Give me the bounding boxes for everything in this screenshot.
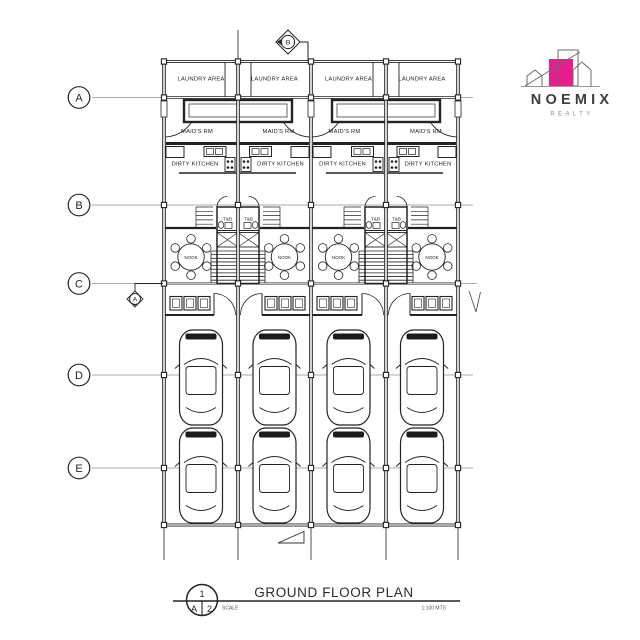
nook-table: NOOK <box>264 235 304 280</box>
stove <box>241 158 251 172</box>
section-marker-left-letter: A <box>133 296 138 303</box>
kitchen-counter <box>313 147 331 158</box>
toilet-bath-label: T&B <box>223 217 232 222</box>
grid-row-label: B <box>75 200 82 212</box>
grid-tick <box>161 59 166 64</box>
dirty-kitchen-label: DIRTY KITCHEN <box>319 162 366 168</box>
nook-table: NOOK <box>412 235 452 280</box>
front-window <box>265 297 277 311</box>
grid-tick <box>455 95 460 100</box>
door-swing-arc <box>241 294 263 316</box>
title-block: 1 A 2 GROUND FLOOR PLAN SCALE 1:100 MTS <box>173 585 460 616</box>
stove <box>225 158 235 172</box>
grid-tick <box>383 372 388 377</box>
dirty-kitchen-label: DIRTY KITCHEN <box>257 162 304 168</box>
kitchen-counter <box>291 147 309 158</box>
front-window <box>345 297 357 311</box>
ref-sheet-number: 2 <box>207 604 212 614</box>
nook-table: NOOK <box>171 235 211 280</box>
unit-1: LAUNDRY AREAMAID'S RMDIRTY KITCHENNOOK <box>164 77 237 524</box>
drawing-sheet: LAUNDRY AREAMAID'S RMDIRTY KITCHENNOOKLA… <box>0 0 640 640</box>
unit-2: LAUNDRY AREAMAID'S RMDIRTY KITCHENNOOK <box>239 77 311 524</box>
grid-bubble-C: C <box>68 273 90 295</box>
front-window <box>440 297 452 311</box>
car <box>396 428 448 523</box>
car-windshield-band <box>259 432 290 438</box>
grid-bubble-A: A <box>68 87 90 109</box>
grid-tick <box>235 372 240 377</box>
front-window <box>317 297 329 311</box>
car <box>396 330 448 425</box>
grid-tick <box>235 202 240 207</box>
grid-bubble-B: B <box>68 194 90 216</box>
front-window <box>198 297 210 311</box>
car-windshield-band <box>407 432 438 438</box>
front-window <box>412 297 424 311</box>
kitchen-counter <box>438 147 456 158</box>
car <box>249 330 301 425</box>
door-swing-arc <box>389 294 411 316</box>
maids-room-label: MAID'S RM <box>263 129 295 135</box>
dirty-kitchen-label: DIRTY KITCHEN <box>405 162 452 168</box>
front-window <box>170 297 182 311</box>
grid-tick <box>455 465 460 470</box>
grid-tick <box>235 95 240 100</box>
wall-opening <box>161 101 167 117</box>
grid-tick <box>308 372 313 377</box>
toilet-bath-label: T&B <box>244 217 253 222</box>
scale-label: SCALE <box>222 606 239 612</box>
car <box>323 330 375 425</box>
grid-bubbles: ABCDE <box>68 87 90 479</box>
kitchen-counter <box>166 147 184 158</box>
door-swing-arc <box>214 294 236 316</box>
ramp-symbol <box>278 532 304 544</box>
grid-tick <box>161 202 166 207</box>
laundry-area-label: LAUNDRY AREA <box>325 77 372 83</box>
grid-row-label: D <box>75 370 83 382</box>
car-windshield-band <box>333 432 364 438</box>
car-windshield-band <box>186 432 217 438</box>
laundry-area-label: LAUNDRY AREA <box>178 77 225 83</box>
wall-opening <box>308 101 314 117</box>
door-swing-arc <box>362 294 384 316</box>
front-window <box>279 297 291 311</box>
grid-row-label: A <box>75 92 83 104</box>
grid-tick <box>308 522 313 527</box>
scale-value: 1:100 MTS <box>422 606 447 612</box>
car <box>175 428 227 523</box>
section-marker-top: B <box>276 30 308 60</box>
grid-tick <box>383 202 388 207</box>
dirty-kitchen-label: DIRTY KITCHEN <box>172 162 219 168</box>
maids-room-label: MAID'S RM <box>181 129 213 135</box>
wall-opening <box>455 101 461 117</box>
drawing-title: GROUND FLOOR PLAN <box>254 585 413 600</box>
front-window <box>426 297 438 311</box>
nook-label: NOOK <box>278 255 291 260</box>
section-marker-top-letter: B <box>286 40 291 47</box>
car <box>175 330 227 425</box>
grid-tick <box>455 281 460 286</box>
nook-label: NOOK <box>425 255 438 260</box>
nook-label: NOOK <box>332 255 345 260</box>
car-windshield-band <box>186 334 217 340</box>
grid-row-label: E <box>75 463 82 475</box>
front-window <box>293 297 305 311</box>
section-marker-left: A <box>127 284 163 308</box>
stove <box>389 158 399 172</box>
logo-tagline: REALTY <box>550 112 593 118</box>
unit-4: LAUNDRY AREAMAID'S RMDIRTY KITCHENNOOK <box>387 77 458 524</box>
grid-tick <box>308 281 313 286</box>
grid-tick <box>308 465 313 470</box>
logo-name: NOEMIX <box>531 92 613 108</box>
grid-bubble-D: D <box>68 364 90 386</box>
grid-tick <box>161 95 166 100</box>
grid-tick <box>235 281 240 286</box>
car <box>249 428 301 523</box>
logo-accent-block <box>549 59 573 86</box>
stove <box>373 158 383 172</box>
grid-tick <box>161 522 166 527</box>
maids-room-label: MAID'S RM <box>329 129 361 135</box>
nook-table: NOOK <box>318 235 358 280</box>
grid-tick <box>383 522 388 527</box>
car-windshield-band <box>407 334 438 340</box>
noemix-logo: NOEMIX REALTY <box>521 50 613 118</box>
toilet-bath-label: T&B <box>392 217 401 222</box>
ref-sheet-letter: A <box>191 604 197 614</box>
laundry-area-label: LAUNDRY AREA <box>251 77 298 83</box>
grid-tick <box>308 59 313 64</box>
grid-tick <box>383 59 388 64</box>
grid-tick <box>455 372 460 377</box>
grid-tick <box>455 202 460 207</box>
nook-label: NOOK <box>184 255 197 260</box>
grid-tick <box>161 372 166 377</box>
grid-tick <box>161 465 166 470</box>
grid-row-label: C <box>75 278 83 290</box>
grid-tick <box>383 95 388 100</box>
front-window <box>331 297 343 311</box>
unit-3: LAUNDRY AREAMAID'S RMDIRTY KITCHENNOOK <box>311 77 385 524</box>
toilet-bath-label: T&B <box>371 217 380 222</box>
grid-tick <box>308 202 313 207</box>
grid-tick <box>235 465 240 470</box>
car-windshield-band <box>333 334 364 340</box>
grid-tick <box>383 281 388 286</box>
ref-number: 1 <box>199 589 204 599</box>
leader-flag <box>469 291 481 312</box>
grid-tick <box>383 465 388 470</box>
grid-tick <box>455 522 460 527</box>
front-window <box>184 297 196 311</box>
floor-plan-canvas: LAUNDRY AREAMAID'S RMDIRTY KITCHENNOOKLA… <box>0 0 640 640</box>
grid-tick <box>235 522 240 527</box>
car <box>323 428 375 523</box>
grid-tick <box>235 59 240 64</box>
laundry-area-label: LAUNDRY AREA <box>399 77 446 83</box>
grid-bubble-E: E <box>68 457 90 479</box>
grid-tick <box>308 95 313 100</box>
car-windshield-band <box>259 334 290 340</box>
grid-tick <box>455 59 460 64</box>
